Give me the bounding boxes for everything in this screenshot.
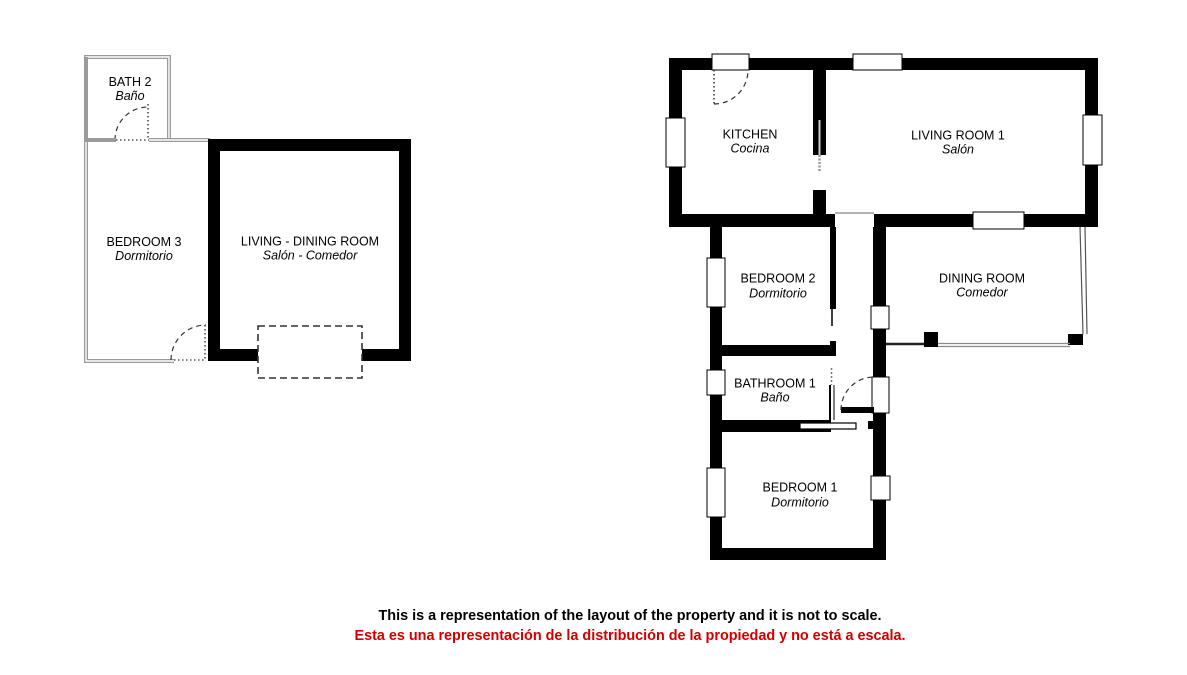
svg-text:LIVING ROOM 1: LIVING ROOM 1 — [911, 129, 1005, 143]
svg-text:BEDROOM 1: BEDROOM 1 — [762, 481, 837, 495]
svg-text:Comedor: Comedor — [956, 286, 1008, 300]
svg-text:DINING ROOM: DINING ROOM — [939, 272, 1025, 286]
svg-text:This is a representation of th: This is a representation of the layout o… — [379, 608, 882, 624]
svg-text:Cocina: Cocina — [731, 142, 770, 156]
svg-text:Salón: Salón — [942, 143, 974, 157]
svg-text:BEDROOM 3: BEDROOM 3 — [106, 235, 181, 249]
svg-text:BATHROOM 1: BATHROOM 1 — [734, 377, 816, 391]
svg-text:KITCHEN: KITCHEN — [723, 128, 778, 142]
svg-text:LIVING - DINING ROOM: LIVING - DINING ROOM — [241, 235, 379, 249]
svg-text:BEDROOM 2: BEDROOM 2 — [740, 272, 815, 286]
svg-text:Baño: Baño — [760, 391, 789, 405]
svg-text:Salón - Comedor: Salón - Comedor — [263, 249, 358, 263]
svg-text:Esta es una representación de: Esta es una representación de la distrib… — [354, 628, 905, 644]
svg-text:Dormitorio: Dormitorio — [115, 249, 173, 263]
svg-text:Dormitorio: Dormitorio — [749, 287, 807, 301]
svg-text:BATH 2: BATH 2 — [109, 75, 152, 89]
svg-text:Dormitorio: Dormitorio — [771, 496, 829, 510]
svg-text:Baño: Baño — [115, 89, 144, 103]
